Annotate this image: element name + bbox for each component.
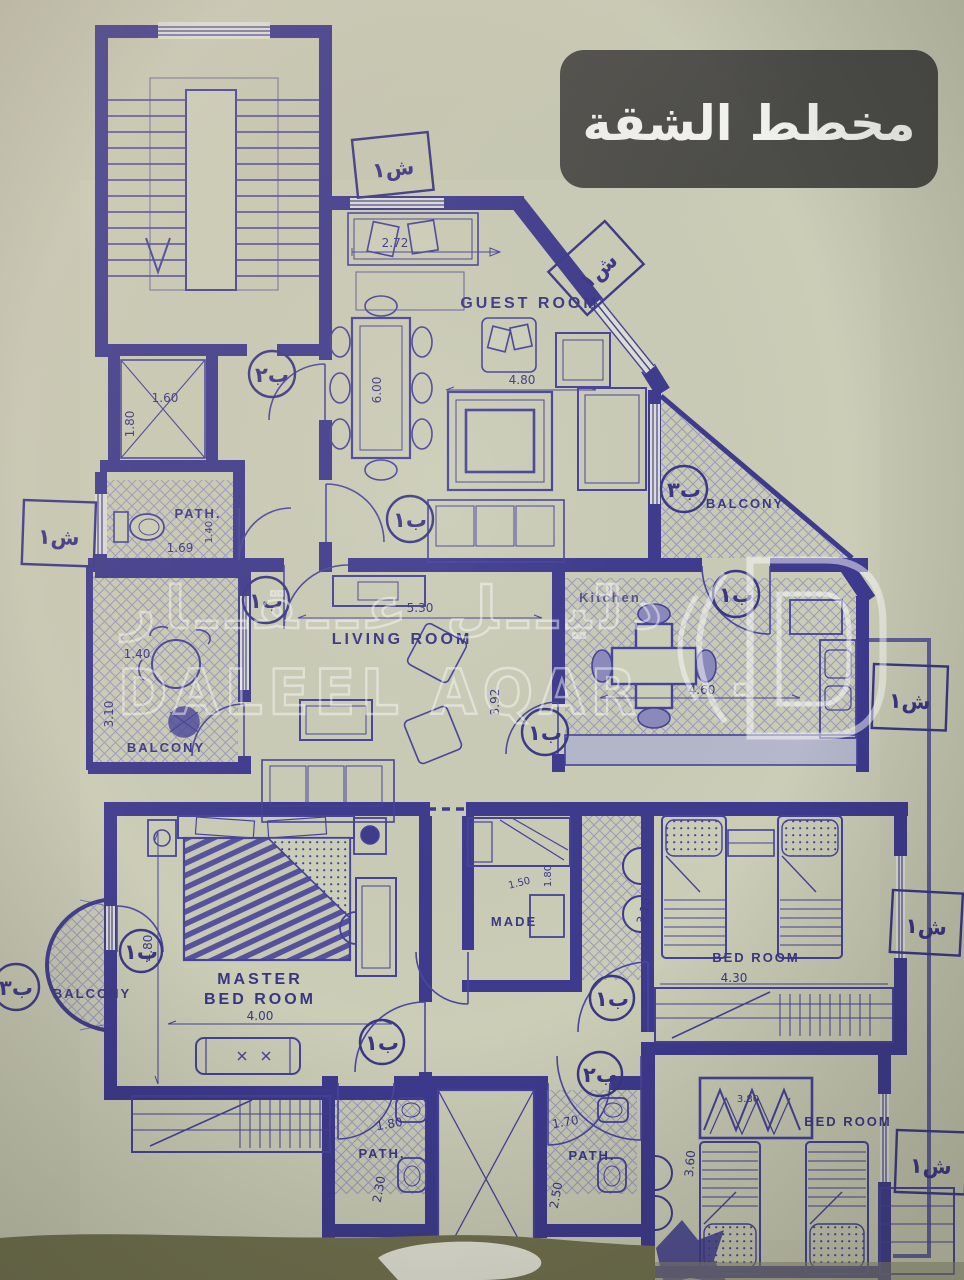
master-balcony-window — [106, 906, 115, 950]
room-label-balcony-w: BALCONY — [127, 740, 205, 755]
dim-bedroom2-depth: 3.60 — [682, 1150, 698, 1178]
room-label-bedroom1: BED ROOM — [712, 950, 800, 965]
door-marker-label: ب٢ — [255, 363, 289, 387]
door-marker-label: ب١ — [365, 1031, 399, 1055]
floor-plan-drawing: GUEST ROOM LIVING ROOM Kitchen MASTER BE… — [0, 0, 964, 1280]
room-label-wc: PATH. — [174, 506, 221, 521]
door-marker-label: ب٣ — [0, 976, 33, 1000]
door-marker-label: ب٢ — [583, 1063, 617, 1087]
title-badge: مخطط الشقة — [560, 50, 938, 188]
room-label-balcony-sw: BALCONY — [53, 986, 131, 1001]
room-label-master-1: MASTER — [217, 971, 303, 988]
door-marker-label: ب٣ — [667, 478, 701, 502]
room-label-bedroom2: BED ROOM — [804, 1114, 892, 1129]
dim-lift-depth: 1.80 — [123, 411, 137, 438]
window-marker-label: ش١ — [37, 525, 80, 550]
watermark-arabic: دليــل عــقــار — [119, 574, 662, 642]
dim-guest-sofa: 2.72 — [382, 236, 409, 250]
dim-maid-depth: 1.80 — [543, 865, 554, 887]
master-bed — [178, 816, 354, 960]
wc-toilet — [114, 512, 164, 542]
dim-lift-width: 1.60 — [152, 391, 179, 405]
floor-plan-photo: GUEST ROOM LIVING ROOM Kitchen MASTER BE… — [0, 0, 964, 1280]
window-marker-label: ش١ — [371, 155, 415, 183]
room-label-balcony-ne: BALCONY — [706, 496, 784, 511]
dim-master-width: 4.00 — [247, 1009, 274, 1023]
dim-wc-depth: 1.40 — [204, 521, 215, 543]
window-marker-label: ش١ — [888, 689, 931, 714]
dim-balcony-left-depth: 3.10 — [102, 701, 116, 728]
dim-bedroom1-width: 4.30 — [721, 971, 748, 985]
bedroom1-window — [896, 856, 905, 958]
room-label-maid: MADE — [491, 914, 537, 929]
door-marker-label: ب١ — [124, 940, 158, 964]
dim-wc-width: 1.69 — [167, 541, 194, 555]
door-marker-label: ب١ — [393, 508, 427, 532]
dim-guest-table: 6.00 — [370, 377, 384, 404]
guest-top-window — [350, 198, 444, 208]
door-marker-label: ب١ — [595, 987, 629, 1011]
room-label-bath2: PATH. — [568, 1148, 615, 1163]
bedroom2-window — [880, 1094, 889, 1182]
room-label-guest: GUEST ROOM — [460, 295, 599, 312]
stair-window — [158, 22, 270, 39]
watermark-latin: DALEEL AQAR — [118, 656, 642, 729]
room-label-master-2: BED ROOM — [204, 991, 316, 1008]
window-marker-label: ش١ — [909, 1153, 952, 1178]
dim-wardrobe2-width: 3.80 — [737, 1094, 759, 1105]
guest-right-window — [650, 404, 660, 504]
dim-guest-width: 4.80 — [509, 373, 536, 387]
window-marker-label: ش١ — [905, 914, 948, 940]
page-title: مخطط الشقة — [583, 95, 916, 152]
room-label-bath1: PATH. — [358, 1146, 405, 1161]
